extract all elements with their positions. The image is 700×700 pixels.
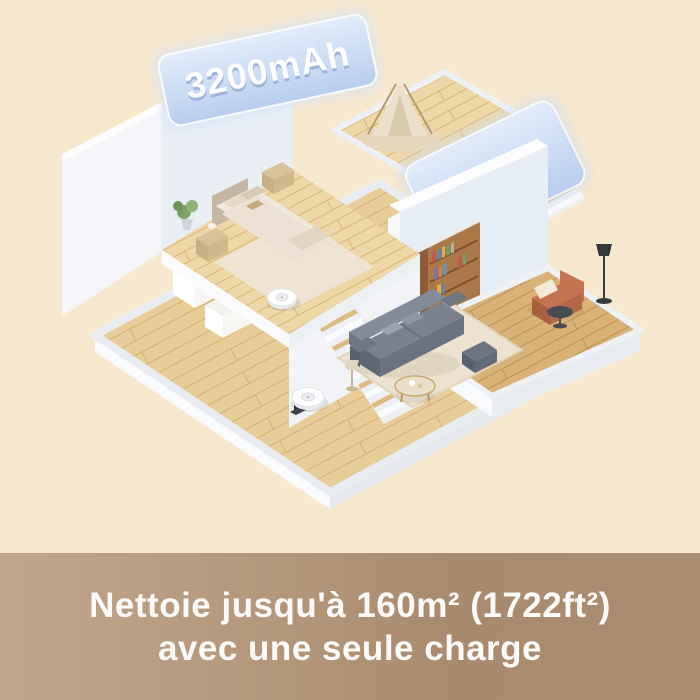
caption-band: Nettoie jusqu'à 160m² (1722ft²) avec une… bbox=[0, 553, 700, 700]
caption-line-1: Nettoie jusqu'à 160m² (1722ft²) bbox=[0, 585, 700, 626]
coffee-table bbox=[395, 376, 435, 403]
product-hero-image: 1722ft² 1722ft² bbox=[0, 0, 700, 700]
dollhouse-scene: 1722ft² 1722ft² bbox=[0, 0, 700, 553]
caption-line-2: avec une seule charge bbox=[0, 628, 700, 669]
